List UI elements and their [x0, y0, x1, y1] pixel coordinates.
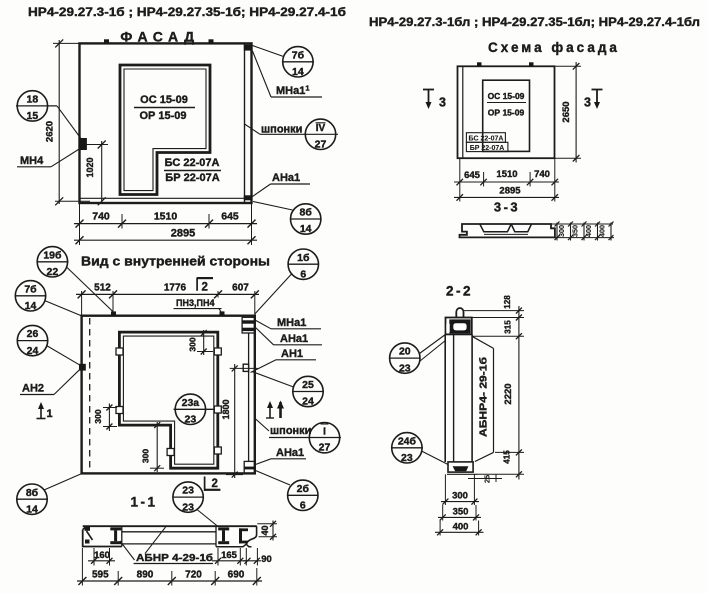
svg-text:НР4-29.27.3-1бл ; НР4-29.27.3: НР4-29.27.3-1бл ; НР4-29.27.35-1бл; НР4-… — [369, 15, 700, 29]
svg-text:14: 14 — [25, 300, 37, 312]
svg-text:7б: 7б — [292, 49, 305, 61]
svg-text:24б: 24б — [398, 435, 417, 447]
svg-text:22: 22 — [47, 266, 59, 278]
svg-text:23а: 23а — [182, 397, 200, 409]
svg-text:БР 22-07А: БР 22-07А — [165, 172, 219, 184]
svg-text:740: 740 — [92, 211, 110, 223]
svg-text:160: 160 — [94, 550, 110, 561]
svg-text:БР 22-07А: БР 22-07А — [470, 145, 505, 152]
svg-text:128: 128 — [503, 295, 512, 309]
svg-text:18: 18 — [27, 94, 39, 106]
svg-text:2: 2 — [202, 282, 208, 294]
svg-text:7б: 7б — [24, 283, 37, 295]
svg-text:АБНР4- 29-1б: АБНР4- 29-1б — [478, 357, 490, 437]
svg-text:300: 300 — [557, 225, 566, 237]
svg-text:300: 300 — [452, 491, 468, 502]
svg-text:8б: 8б — [300, 207, 313, 219]
svg-text:25: 25 — [483, 475, 492, 483]
svg-text:14: 14 — [292, 66, 304, 78]
svg-text:ОР 15-09: ОР 15-09 — [488, 108, 525, 118]
svg-text:ПН3,ПН4: ПН3,ПН4 — [176, 298, 214, 308]
svg-text:165: 165 — [221, 550, 238, 561]
svg-text:ФАСАД: ФАСАД — [120, 29, 199, 45]
svg-text:2220: 2220 — [503, 383, 514, 404]
svg-text:НР4-29.27.3-1б ; НР4-29.27.35: НР4-29.27.3-1б ; НР4-29.27.35-1б; НР4-29… — [28, 5, 346, 19]
svg-text:19б: 19б — [43, 249, 62, 261]
svg-text:607: 607 — [232, 283, 249, 294]
svg-text:90: 90 — [261, 554, 272, 565]
svg-text:23: 23 — [182, 485, 194, 497]
svg-text:ОС 15-09: ОС 15-09 — [488, 91, 525, 101]
svg-text:2: 2 — [212, 478, 218, 490]
svg-text:АНа1: АНа1 — [276, 447, 304, 459]
svg-text:Схема фасада: Схема фасада — [488, 40, 620, 55]
svg-text:24: 24 — [27, 345, 39, 357]
svg-text:АН2: АН2 — [22, 383, 44, 395]
svg-text:14: 14 — [300, 223, 312, 235]
svg-text:АН1: АН1 — [281, 348, 303, 360]
svg-text:МНа11: МНа11 — [276, 84, 310, 98]
svg-text:3: 3 — [584, 96, 591, 110]
svg-text:595: 595 — [92, 570, 109, 581]
svg-text:2б: 2б — [297, 483, 310, 495]
svg-text:23: 23 — [185, 414, 197, 426]
svg-text:690: 690 — [228, 570, 245, 581]
svg-text:300: 300 — [188, 337, 198, 351]
svg-text:АНа1: АНа1 — [272, 172, 300, 184]
svg-text:IV: IV — [316, 123, 326, 134]
svg-text:1510: 1510 — [496, 169, 517, 180]
svg-text:БС 22-07А: БС 22-07А — [469, 135, 504, 142]
svg-text:3: 3 — [439, 96, 446, 110]
svg-text:Вид с внутренней стороны: Вид с внутренней стороны — [81, 254, 270, 269]
svg-text:ОС 15-09: ОС 15-09 — [140, 94, 188, 106]
svg-text:300: 300 — [93, 409, 103, 423]
svg-text:2-2: 2-2 — [446, 284, 473, 299]
svg-text:МНа1: МНа1 — [277, 317, 306, 329]
svg-text:23: 23 — [401, 452, 413, 464]
svg-text:I: I — [323, 426, 326, 437]
svg-text:315: 315 — [504, 320, 513, 334]
svg-text:300: 300 — [141, 449, 151, 463]
svg-text:1800: 1800 — [221, 399, 231, 419]
svg-text:2650: 2650 — [561, 101, 572, 122]
svg-text:350: 350 — [571, 225, 580, 237]
svg-text:720: 720 — [185, 570, 202, 581]
svg-text:40: 40 — [260, 525, 270, 535]
svg-text:АБНР 4-29-1б: АБНР 4-29-1б — [136, 552, 214, 564]
svg-text:2620: 2620 — [45, 121, 56, 142]
svg-text:14: 14 — [26, 503, 38, 515]
svg-text:МН4: МН4 — [20, 155, 44, 167]
svg-text:1776: 1776 — [164, 283, 187, 294]
svg-text:1: 1 — [47, 408, 53, 420]
svg-text:350: 350 — [453, 506, 469, 517]
svg-text:512: 512 — [94, 283, 111, 294]
svg-text:20: 20 — [399, 346, 411, 358]
svg-text:27: 27 — [315, 138, 327, 150]
svg-text:ОР 15-09: ОР 15-09 — [139, 110, 186, 122]
svg-text:БС 22-07А: БС 22-07А — [165, 157, 220, 169]
svg-text:415: 415 — [503, 450, 512, 464]
svg-text:890: 890 — [137, 570, 154, 581]
svg-text:25: 25 — [302, 379, 314, 391]
svg-text:2895: 2895 — [171, 228, 195, 240]
svg-text:15: 15 — [27, 110, 39, 122]
svg-text:23: 23 — [182, 501, 194, 513]
svg-text:1б: 1б — [297, 252, 310, 264]
svg-text:400: 400 — [598, 225, 607, 237]
svg-text:шпонки: шпонки — [270, 425, 311, 437]
svg-text:1-1: 1-1 — [130, 495, 157, 510]
svg-text:400: 400 — [584, 225, 593, 237]
svg-text:1020: 1020 — [85, 157, 95, 177]
svg-text:23: 23 — [399, 362, 411, 374]
svg-text:8б: 8б — [26, 487, 39, 499]
svg-text:27: 27 — [319, 442, 331, 454]
svg-text:400: 400 — [453, 521, 469, 532]
svg-text:1510: 1510 — [154, 211, 178, 223]
svg-text:АНа1: АНа1 — [280, 333, 308, 345]
svg-text:26: 26 — [27, 328, 39, 340]
svg-text:645: 645 — [221, 211, 239, 223]
svg-text:740: 740 — [534, 169, 550, 180]
svg-text:2895: 2895 — [499, 186, 521, 197]
svg-text:645: 645 — [464, 170, 481, 181]
svg-text:6: 6 — [300, 500, 306, 512]
svg-text:24: 24 — [302, 396, 314, 408]
svg-text:3-3: 3-3 — [494, 200, 520, 215]
svg-text:6: 6 — [300, 268, 306, 280]
